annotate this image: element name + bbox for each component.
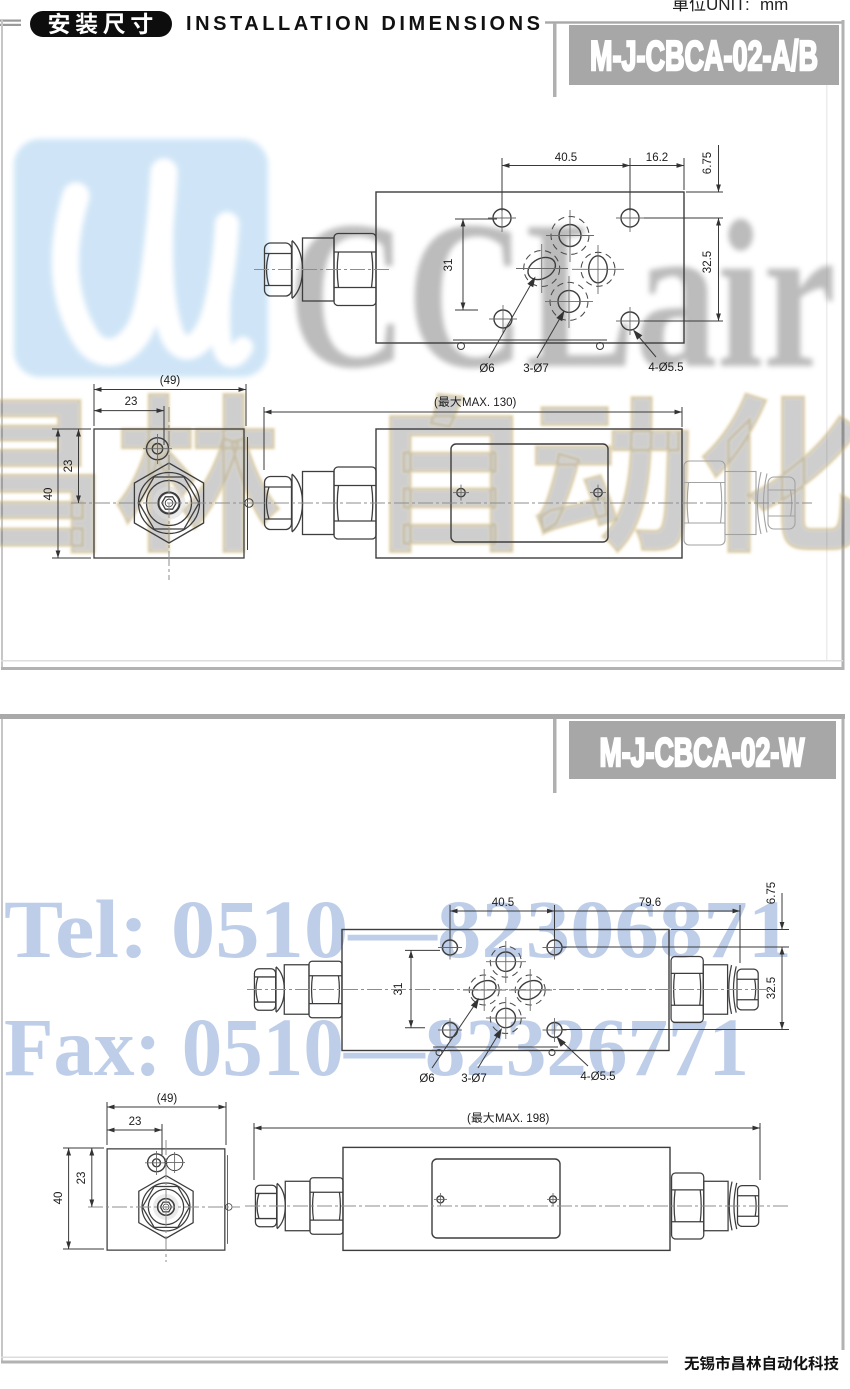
- svg-text:23: 23: [125, 396, 138, 408]
- svg-text:Ø6: Ø6: [419, 1073, 434, 1085]
- svg-text:3-Ø7: 3-Ø7: [523, 363, 549, 375]
- svg-text:(49): (49): [157, 1093, 178, 1105]
- svg-text:16.2: 16.2: [646, 152, 668, 164]
- svg-text:(49): (49): [160, 375, 181, 387]
- svg-text:40.5: 40.5: [555, 152, 577, 164]
- svg-text:6.75: 6.75: [702, 152, 714, 174]
- svg-text:3-Ø7: 3-Ø7: [461, 1073, 487, 1085]
- svg-text:79.6: 79.6: [639, 897, 661, 909]
- svg-text:6.75: 6.75: [766, 882, 778, 904]
- svg-text:4-Ø5.5: 4-Ø5.5: [648, 362, 683, 374]
- svg-text:UNIT: UNIT: [706, 0, 746, 14]
- svg-text:23: 23: [63, 460, 75, 473]
- svg-text:32.5: 32.5: [702, 251, 714, 273]
- svg-text:40.5: 40.5: [492, 897, 514, 909]
- svg-text:(: (: [434, 397, 438, 409]
- svg-text:M-J-CBCA-02-W: M-J-CBCA-02-W: [600, 731, 805, 775]
- svg-text:23: 23: [76, 1172, 88, 1185]
- svg-text:32.5: 32.5: [766, 977, 778, 999]
- svg-text:31: 31: [393, 983, 405, 996]
- svg-text:23: 23: [129, 1116, 142, 1128]
- svg-text::: :: [745, 0, 750, 14]
- svg-text:Ø6: Ø6: [479, 363, 494, 375]
- svg-text:Fax: 0510—82326771: Fax: 0510—82326771: [4, 1001, 749, 1093]
- svg-text:4-Ø5.5: 4-Ø5.5: [580, 1071, 615, 1083]
- svg-text:MAX. 198): MAX. 198): [495, 1113, 549, 1125]
- svg-text:CCLair: CCLair: [288, 177, 836, 412]
- svg-text:(: (: [467, 1113, 471, 1125]
- svg-text:mm: mm: [760, 0, 788, 14]
- svg-text:M-J-CBCA-02-A/B: M-J-CBCA-02-A/B: [590, 32, 818, 79]
- svg-text:40: 40: [53, 1192, 65, 1205]
- svg-text:31: 31: [443, 259, 455, 272]
- svg-text:MAX. 130): MAX. 130): [462, 397, 516, 409]
- svg-text:INSTALLATION DIMENSIONS: INSTALLATION DIMENSIONS: [186, 13, 540, 35]
- svg-text:40: 40: [43, 488, 55, 501]
